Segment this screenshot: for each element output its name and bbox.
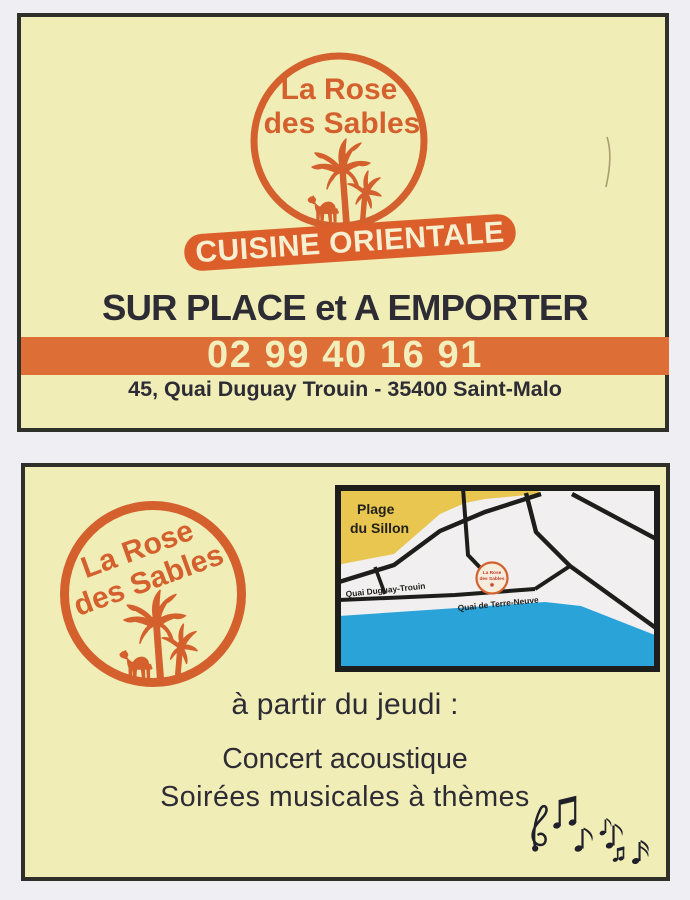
svg-text:du Sillon: du Sillon	[350, 520, 409, 536]
svg-text:Plage: Plage	[357, 501, 395, 517]
svg-text:✺: ✺	[489, 582, 494, 589]
svg-text:La Rose: La Rose	[483, 570, 502, 576]
svg-text:des Sables: des Sables	[479, 576, 504, 582]
